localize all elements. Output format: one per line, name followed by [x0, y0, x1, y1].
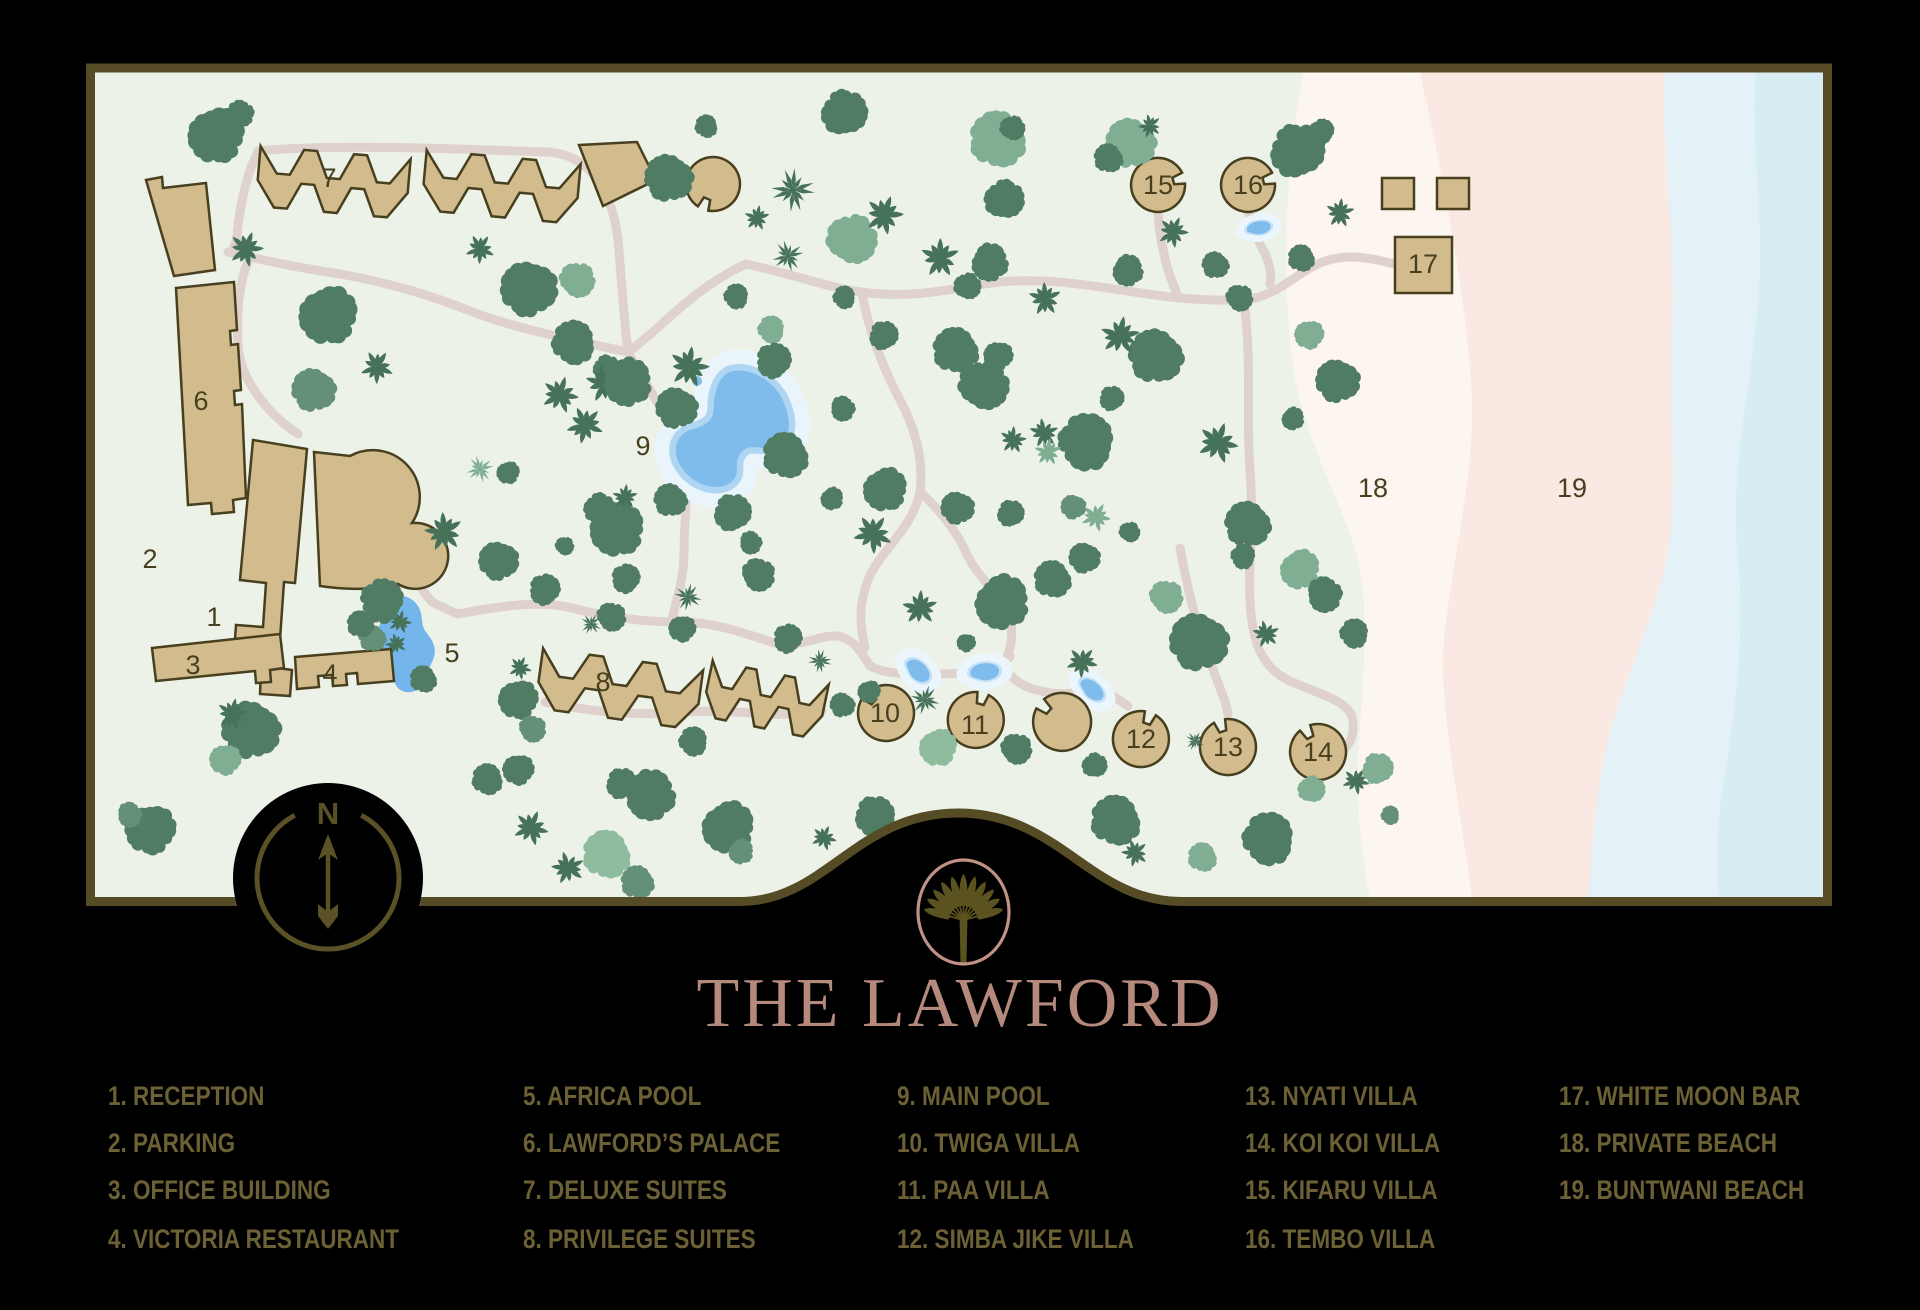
- svg-text:17: 17: [1408, 249, 1438, 279]
- svg-text:14. KOI KOI VILLA: 14. KOI KOI VILLA: [1245, 1129, 1440, 1158]
- svg-text:7: 7: [321, 163, 336, 193]
- svg-text:N: N: [317, 796, 339, 831]
- svg-text:18. PRIVATE BEACH: 18. PRIVATE BEACH: [1559, 1129, 1777, 1158]
- svg-text:13. NYATI VILLA: 13. NYATI VILLA: [1245, 1082, 1418, 1111]
- svg-text:19: 19: [1557, 473, 1587, 503]
- svg-text:4. VICTORIA RESTAURANT: 4. VICTORIA RESTAURANT: [108, 1225, 399, 1254]
- svg-text:10. TWIGA VILLA: 10. TWIGA VILLA: [897, 1129, 1080, 1158]
- svg-text:18: 18: [1358, 473, 1388, 503]
- svg-text:13: 13: [1213, 732, 1243, 762]
- svg-text:14: 14: [1303, 737, 1333, 767]
- svg-text:3: 3: [185, 650, 200, 680]
- svg-text:16. TEMBO VILLA: 16. TEMBO VILLA: [1245, 1225, 1435, 1254]
- svg-text:16: 16: [1233, 170, 1263, 200]
- svg-text:10: 10: [870, 698, 900, 728]
- svg-text:6. LAWFORD’S PALACE: 6. LAWFORD’S PALACE: [523, 1129, 780, 1158]
- svg-text:9. MAIN POOL: 9. MAIN POOL: [897, 1082, 1050, 1111]
- svg-text:4: 4: [322, 659, 337, 689]
- svg-text:11: 11: [961, 710, 989, 740]
- svg-text:12. SIMBA JIKE VILLA: 12. SIMBA JIKE VILLA: [897, 1225, 1134, 1254]
- svg-text:1: 1: [206, 602, 221, 632]
- svg-text:11. PAA VILLA: 11. PAA VILLA: [897, 1176, 1050, 1205]
- svg-text:5: 5: [444, 638, 459, 668]
- svg-text:THE LAWFORD: THE LAWFORD: [696, 965, 1223, 1042]
- svg-text:5. AFRICA POOL: 5. AFRICA POOL: [523, 1082, 701, 1111]
- svg-text:19. BUNTWANI BEACH: 19. BUNTWANI BEACH: [1559, 1176, 1804, 1205]
- svg-text:2. PARKING: 2. PARKING: [108, 1129, 235, 1158]
- svg-text:15. KIFARU VILLA: 15. KIFARU VILLA: [1245, 1176, 1438, 1205]
- svg-text:12: 12: [1126, 724, 1156, 754]
- svg-text:8: 8: [595, 667, 610, 697]
- svg-text:15: 15: [1143, 170, 1173, 200]
- svg-text:7. DELUXE SUITES: 7. DELUXE SUITES: [523, 1176, 727, 1205]
- svg-text:8. PRIVILEGE SUITES: 8. PRIVILEGE SUITES: [523, 1225, 756, 1254]
- svg-text:6: 6: [193, 386, 208, 416]
- svg-text:2: 2: [142, 544, 157, 574]
- svg-text:17. WHITE MOON BAR: 17. WHITE MOON BAR: [1559, 1082, 1801, 1111]
- svg-text:1. RECEPTION: 1. RECEPTION: [108, 1082, 264, 1111]
- svg-text:9: 9: [635, 431, 650, 461]
- svg-text:3. OFFICE BUILDING: 3. OFFICE BUILDING: [108, 1176, 331, 1205]
